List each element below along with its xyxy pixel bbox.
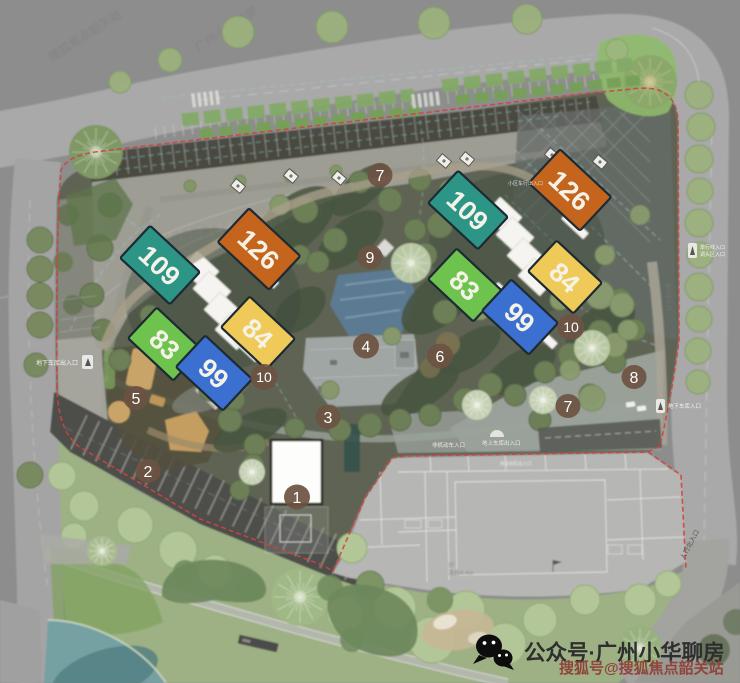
svg-text:7: 7 [376, 168, 385, 185]
svg-text:商业街区出入口: 商业街区出入口 [500, 460, 532, 467]
svg-text:地下车库出入口: 地下车库出入口 [36, 359, 78, 367]
svg-text:搜狐号@搜狐焦点韶关站: 搜狐号@搜狐焦点韶关站 [559, 659, 724, 677]
svg-text:净高4.4m: 净高4.4m [448, 569, 473, 577]
svg-text:3: 3 [324, 410, 333, 427]
svg-text:9: 9 [366, 250, 375, 267]
svg-text:3F: 3F [448, 563, 455, 569]
svg-text:1: 1 [293, 490, 302, 507]
svg-text:2: 2 [144, 464, 153, 481]
svg-text:小区车行出入口: 小区车行出入口 [508, 180, 543, 187]
svg-text:调头区入口: 调头区入口 [700, 251, 725, 258]
svg-text:4: 4 [362, 339, 371, 356]
svg-text:10: 10 [563, 319, 579, 335]
svg-text:6: 6 [436, 349, 445, 366]
svg-text:地下车库入口: 地下车库入口 [668, 402, 701, 410]
svg-text:地上车库出入口: 地上车库出入口 [482, 439, 521, 447]
svg-text:单行线入口: 单行线入口 [700, 244, 725, 251]
svg-text:非机动车入口: 非机动车入口 [432, 441, 465, 449]
svg-text:8: 8 [630, 370, 639, 387]
svg-text:10: 10 [256, 369, 272, 385]
svg-text:7: 7 [564, 399, 573, 416]
svg-text:5: 5 [132, 391, 141, 408]
